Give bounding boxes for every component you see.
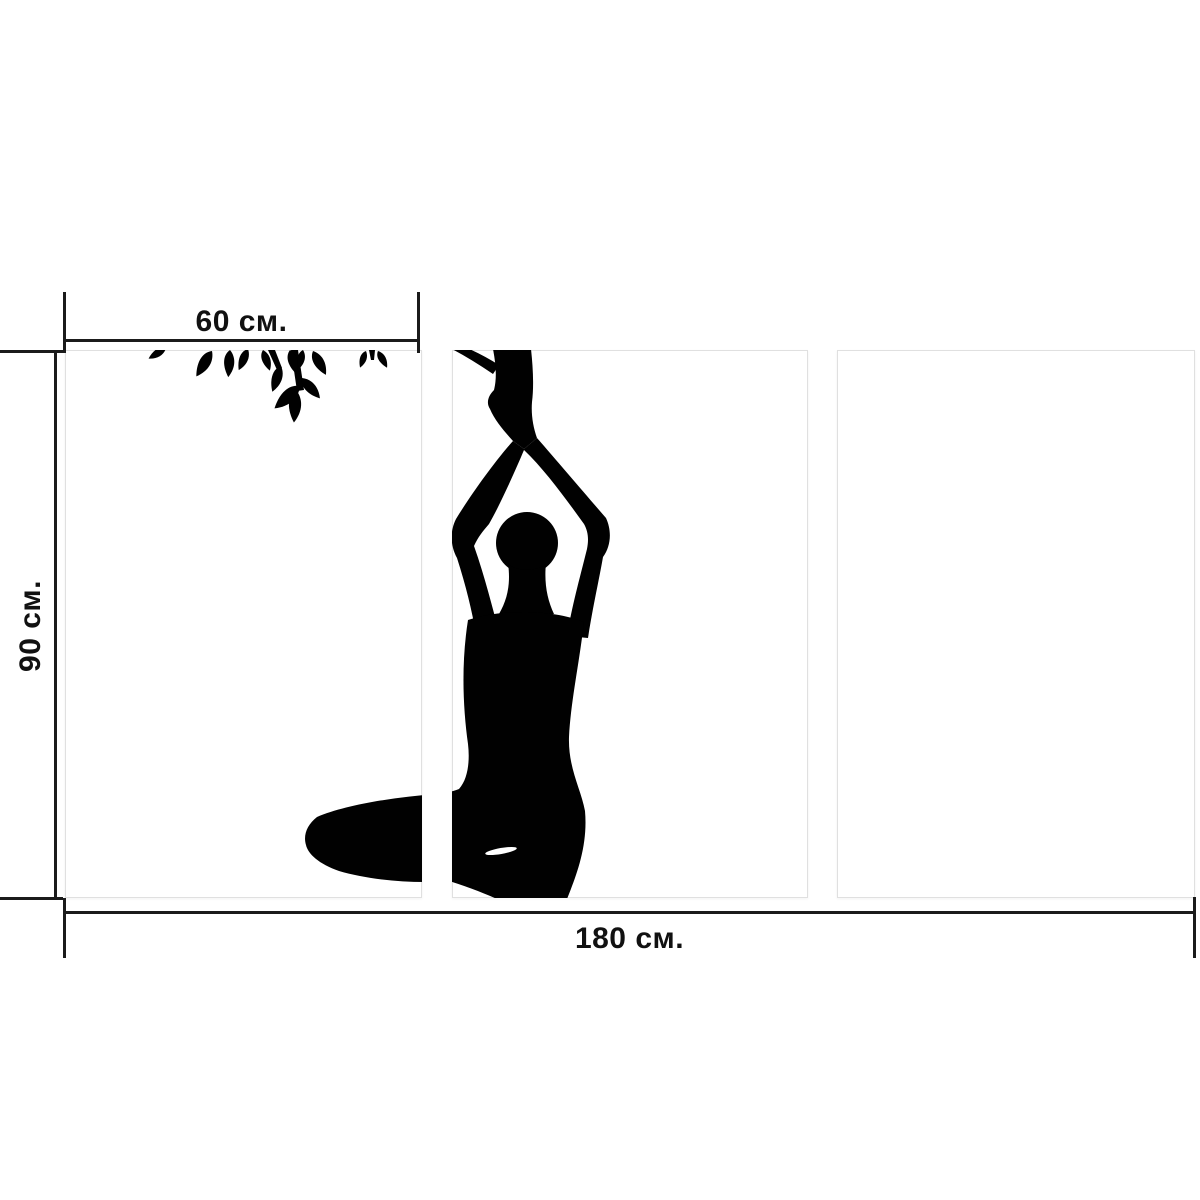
canvas-panel-right — [837, 350, 1195, 898]
dimension-line-bottom — [63, 911, 1196, 914]
total-width-label: 180 см. — [63, 923, 1196, 955]
dimension-tick — [0, 897, 63, 900]
canvas-panel-center — [452, 350, 808, 898]
dimension-line-left — [54, 352, 57, 899]
product-dimension-image: 60 см. 90 см. 180 см. — [0, 0, 1200, 1200]
panel-width-label: 60 см. — [63, 306, 420, 338]
canvas-panel-left — [65, 350, 422, 898]
dimension-line-top — [63, 339, 420, 342]
height-label: 90 см. — [15, 565, 47, 687]
dimension-tick — [0, 350, 65, 353]
